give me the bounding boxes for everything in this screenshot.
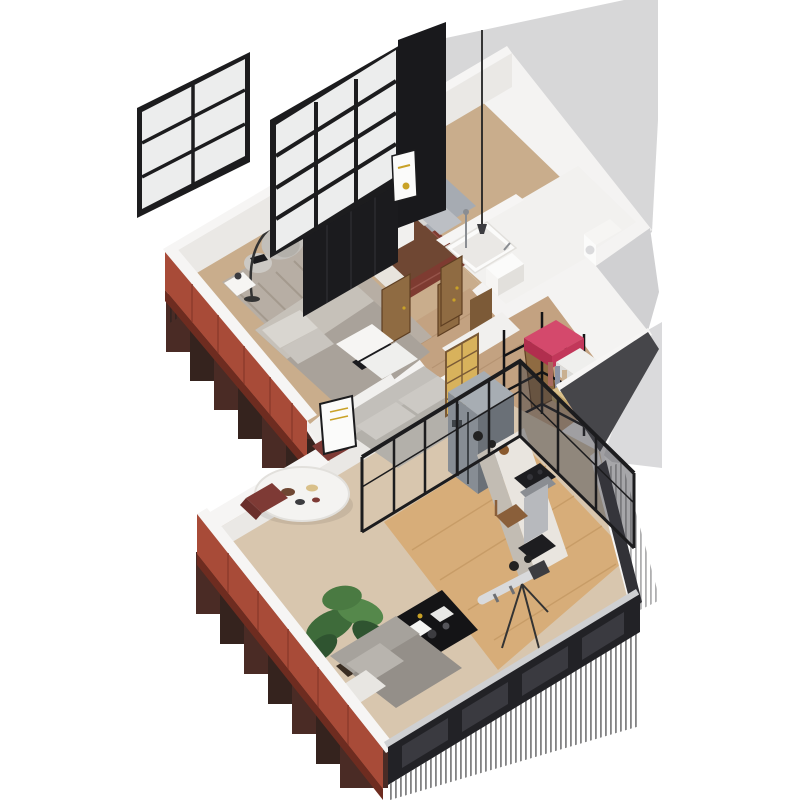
- shower-head: [463, 209, 469, 215]
- pot: [509, 561, 519, 571]
- door-handle: [452, 298, 455, 301]
- burner: [538, 470, 543, 475]
- clothing-item: [548, 362, 553, 386]
- camera-lens-part: [443, 623, 450, 630]
- plate: [295, 499, 305, 505]
- wall-art-frame-a: [392, 150, 417, 202]
- burner: [527, 474, 533, 480]
- floorplan-render: [0, 0, 800, 800]
- wood-door-bathroom: [441, 256, 462, 326]
- plate: [312, 498, 320, 503]
- wall-art-gold-dot: [403, 183, 410, 190]
- pot: [473, 431, 483, 441]
- leaning-wall-art: [320, 396, 356, 454]
- nightstand-lamp: [235, 273, 242, 280]
- door-handle: [402, 306, 405, 309]
- camera-knob: [418, 614, 423, 619]
- door-handle: [455, 286, 458, 289]
- small-loft-window: [137, 52, 250, 218]
- floorplan-stage: [0, 0, 800, 800]
- camera-body: [428, 630, 437, 639]
- arc-lamp-base: [244, 296, 260, 302]
- plate: [306, 485, 318, 492]
- washing-machine-door: [586, 246, 595, 255]
- pot: [524, 555, 532, 563]
